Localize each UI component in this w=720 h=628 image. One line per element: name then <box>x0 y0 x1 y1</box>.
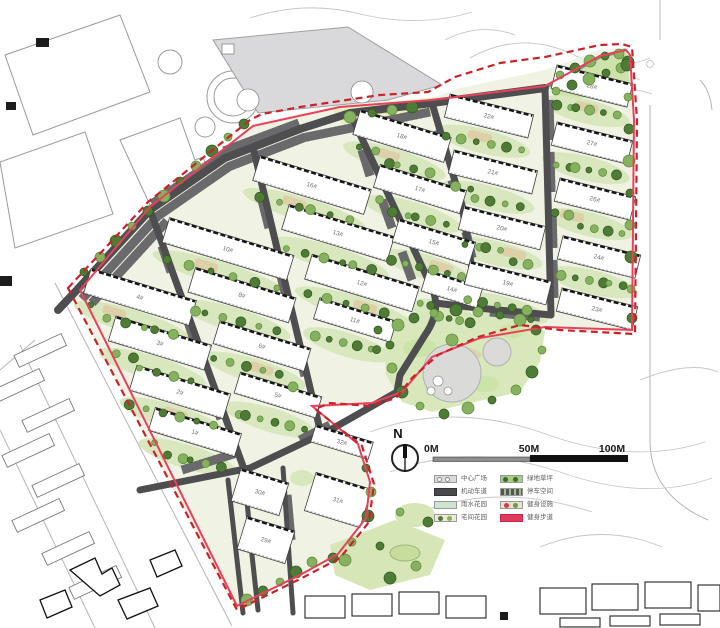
tree-icon <box>340 260 346 266</box>
tree-icon <box>164 451 172 459</box>
tree-icon <box>339 339 347 347</box>
tree-icon <box>285 421 295 431</box>
tree-icon <box>410 165 418 173</box>
tree-icon <box>456 317 464 325</box>
tree-icon <box>456 134 466 144</box>
tree-icon <box>501 142 511 152</box>
tree-icon <box>361 304 369 312</box>
legend-item-rain: 雨水花园 <box>434 501 487 509</box>
tree-icon <box>572 104 580 112</box>
legend-label: 宅间花园 <box>461 514 487 522</box>
tree-icon <box>519 147 525 153</box>
tree-icon <box>386 341 394 349</box>
tree-icon <box>411 213 419 221</box>
tree-icon <box>387 363 397 373</box>
tree-icon <box>552 100 562 110</box>
tree-icon <box>411 561 421 571</box>
tree-icon <box>577 223 583 229</box>
tree-icon <box>343 300 349 306</box>
tree-icon <box>327 212 333 218</box>
tree-icon <box>430 309 438 317</box>
tree-icon <box>178 454 188 464</box>
tree-icon <box>494 302 500 308</box>
tree-icon <box>508 304 516 312</box>
tree-icon <box>379 308 389 318</box>
tree-icon <box>464 296 472 304</box>
legend-label: 绿地草坪 <box>527 475 553 483</box>
tree-icon <box>590 225 598 233</box>
tree-icon <box>141 325 147 331</box>
tree-icon <box>236 317 246 327</box>
tree-icon <box>468 186 474 192</box>
legend-item-parking: 停车空间 <box>500 488 553 496</box>
tree-icon <box>219 313 227 321</box>
plaza-circle-small <box>483 338 511 366</box>
legend-item-fitness: 健身设施 <box>500 501 553 509</box>
tree-icon <box>322 293 332 303</box>
tree-icon <box>473 307 483 317</box>
master-plan-drawing: 4#3#2#1#10#8#6#5#16#13#12#11#18#17#15#14… <box>0 0 720 628</box>
tree-icon <box>121 318 131 328</box>
tree-icon <box>439 409 449 419</box>
tree-icon <box>372 147 380 155</box>
tree-icon <box>552 87 560 95</box>
tree-icon <box>187 457 193 463</box>
tree-icon <box>352 341 362 351</box>
tree-icon <box>295 203 303 211</box>
tree-icon <box>516 203 524 211</box>
legend-label: 健身设施 <box>527 501 553 509</box>
tree-icon <box>271 418 279 426</box>
tree-icon <box>103 314 111 322</box>
tree-icon <box>175 412 185 422</box>
tree-icon <box>572 275 578 281</box>
scale-bar: 0M 50M 100M <box>424 443 628 462</box>
tree-icon <box>208 268 214 274</box>
tree-icon <box>374 326 382 334</box>
tree-icon <box>275 370 283 378</box>
tree-icon <box>184 260 194 270</box>
tree-icon <box>288 382 298 392</box>
tree-icon <box>211 355 217 361</box>
tree-icon <box>402 261 408 267</box>
tree-icon <box>229 273 237 281</box>
tree-icon <box>210 421 218 429</box>
tree-icon <box>478 297 488 307</box>
tree-icon <box>349 261 357 269</box>
tree-icon <box>462 242 468 248</box>
tree-icon <box>624 93 632 101</box>
tree-icon <box>255 192 265 202</box>
tree-icon <box>384 572 396 584</box>
scale-0m: 0M <box>424 443 439 455</box>
tree-icon <box>606 280 612 286</box>
tree-icon <box>446 334 458 346</box>
tree-icon <box>567 80 577 90</box>
tree-icon <box>202 460 210 468</box>
tree-icon <box>624 124 634 134</box>
tree-icon <box>496 311 504 319</box>
scale-50m: 50M <box>519 443 540 455</box>
tree-icon <box>392 319 404 331</box>
context-buildings-left <box>0 334 122 600</box>
tree-icon <box>376 196 384 204</box>
site-plan-page: { "north_arrow": {"label": "N"}, "scale_… <box>0 0 720 628</box>
tree-icon <box>465 318 475 328</box>
tree-icon <box>339 554 351 566</box>
tree-icon <box>136 365 142 371</box>
north-label: N <box>393 426 402 441</box>
tree-icon <box>423 517 433 527</box>
tree-icon <box>301 249 309 257</box>
tree-icon <box>627 285 635 293</box>
tree-icon <box>443 221 449 227</box>
tree-icon <box>462 402 474 414</box>
tree-icon <box>602 69 610 77</box>
tree-icon <box>344 111 356 123</box>
tree-icon <box>387 105 397 115</box>
tree-icon <box>498 247 504 253</box>
tree-icon <box>373 346 381 354</box>
tree-icon <box>188 378 194 384</box>
legend-label: 中心广场 <box>461 475 487 483</box>
tree-icon <box>194 418 200 424</box>
tree-icon <box>388 207 398 217</box>
tree-icon <box>613 111 621 119</box>
tree-icon <box>585 105 595 115</box>
legend-swatch-lawn <box>500 475 523 483</box>
tree-icon <box>240 410 250 420</box>
scale-100m: 100M <box>599 443 626 455</box>
tree-icon <box>304 290 312 298</box>
legend-item-trail: 健身步道 <box>500 514 553 522</box>
tree-icon <box>553 162 559 168</box>
legend-item-courtyard: 宅间花园 <box>434 514 487 522</box>
tree-icon <box>216 462 226 472</box>
tree-icon <box>376 542 384 550</box>
tree-icon <box>346 216 354 224</box>
tree-icon <box>428 265 438 275</box>
tree-icon <box>416 402 424 410</box>
tree-icon <box>511 385 521 395</box>
tree-icon <box>277 199 283 205</box>
tree-icon <box>405 213 411 219</box>
tree-icon <box>191 306 201 316</box>
tree-icon <box>283 246 289 252</box>
tree-icon <box>409 313 419 323</box>
legend-swatch-road <box>434 488 457 496</box>
tree-icon <box>444 270 450 276</box>
tree-icon <box>425 168 435 178</box>
tree-icon <box>274 285 280 291</box>
tree-icon <box>415 263 423 271</box>
legend-label: 停车空间 <box>527 488 553 496</box>
legend-swatch-trail <box>500 514 523 522</box>
tree-icon <box>564 210 574 220</box>
tree-icon <box>570 163 580 173</box>
tree-icon <box>481 243 491 253</box>
tree-icon <box>600 110 606 116</box>
legend-item-lawn: 绿地草坪 <box>500 475 553 483</box>
tree-icon <box>241 361 251 371</box>
tree-icon <box>426 216 436 226</box>
tree-icon <box>427 302 435 310</box>
tree-icon <box>305 205 315 215</box>
tree-icon <box>485 196 495 206</box>
tree-icon <box>487 140 495 148</box>
tree-icon <box>396 508 404 516</box>
tree-icon <box>473 139 479 145</box>
legend-label: 机动车道 <box>461 488 487 496</box>
tree-icon <box>526 366 538 378</box>
tree-icon <box>257 416 263 422</box>
tree-icon <box>260 367 266 373</box>
context-buildings-bottomleft <box>40 550 182 619</box>
north-arrow: N <box>392 426 418 472</box>
tree-icon <box>522 305 532 315</box>
legend-column-left: 中心广场机动车道雨水花园宅间花园 <box>434 475 487 522</box>
legend-swatch-plaza <box>434 475 457 483</box>
tree-icon <box>319 253 329 263</box>
tree-icon <box>273 327 281 335</box>
tree-icon <box>163 256 171 264</box>
legend-label: 健身步道 <box>527 514 553 522</box>
legend: 中心广场机动车道雨水花园宅间花园 绿地草坪停车空间健身设施健身步道 <box>434 475 553 522</box>
tree-icon <box>202 310 208 316</box>
tree-icon <box>619 282 627 290</box>
tree-icon <box>603 226 613 236</box>
tree-icon <box>128 353 138 363</box>
legend-item-road: 机动车道 <box>434 488 487 496</box>
legend-swatch-parking <box>500 488 523 496</box>
tree-icon <box>538 346 546 354</box>
tree-icon <box>446 315 452 321</box>
tree-icon <box>226 358 234 366</box>
tree-icon <box>384 159 394 169</box>
tree-icon <box>256 323 262 329</box>
legend-swatch-rain <box>434 501 457 509</box>
tree-icon <box>457 273 465 281</box>
legend-column-right: 绿地草坪停车空间健身设施健身步道 <box>500 475 553 522</box>
tree-icon <box>367 264 377 274</box>
tree-icon <box>151 326 159 334</box>
tree-icon <box>159 409 167 417</box>
legend-label: 雨水花园 <box>461 501 487 509</box>
tree-icon <box>386 255 396 265</box>
tree-icon <box>356 144 362 150</box>
tree-icon <box>586 167 592 173</box>
tree-icon <box>310 331 320 341</box>
tree-icon <box>599 168 607 176</box>
tree-icon <box>368 109 376 117</box>
tree-icon <box>585 276 593 284</box>
tree-icon <box>450 304 462 316</box>
tree-icon <box>451 181 461 191</box>
tree-icon <box>583 73 595 85</box>
tree-icon <box>417 300 423 306</box>
tree-icon <box>556 270 566 280</box>
tree-icon <box>488 396 496 404</box>
legend-swatch-courtyard <box>434 514 457 522</box>
tree-icon <box>502 201 508 207</box>
tree-icon <box>168 329 178 339</box>
tree-icon <box>612 170 622 180</box>
tree-icon <box>442 132 450 140</box>
tree-icon <box>514 314 526 326</box>
tree-icon <box>302 426 308 432</box>
tree-icon <box>394 162 400 168</box>
tree-icon <box>153 368 161 376</box>
tree-icon <box>169 372 179 382</box>
legend-swatch-fitness <box>500 501 523 509</box>
tree-icon <box>509 258 517 266</box>
tree-icon <box>143 406 149 412</box>
tree-icon <box>619 231 625 237</box>
tree-icon <box>523 259 533 269</box>
tree-icon <box>528 317 534 323</box>
tree-icon <box>551 209 559 217</box>
tree-icon <box>471 194 479 202</box>
legend-item-plaza: 中心广场 <box>434 475 487 483</box>
tree-icon <box>250 277 260 287</box>
tree-icon <box>326 336 332 342</box>
